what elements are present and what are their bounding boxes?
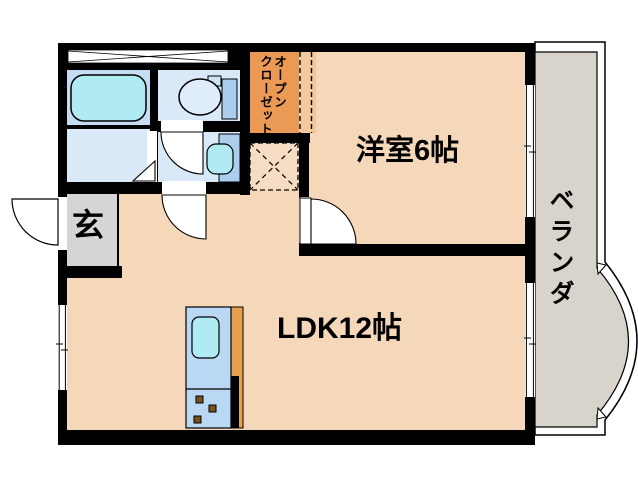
open-closet-label-col1: オープン <box>272 55 286 147</box>
open-closet-label: オープン クローゼット <box>258 55 286 147</box>
stove-burner <box>194 416 201 423</box>
wall-closet-left <box>240 50 250 195</box>
ldk-left-window <box>56 305 68 390</box>
refrigerator-space <box>250 143 298 190</box>
westernroom-window <box>524 85 536 217</box>
open-closet-label-col2: クローゼット <box>258 55 272 147</box>
washroom-door-opening <box>162 181 206 195</box>
toilet-bowl <box>179 79 221 115</box>
bathtub <box>71 75 146 121</box>
wall-ldk-westernroom <box>299 244 525 256</box>
wall-bath-divider <box>67 125 150 129</box>
washbasin-bowl <box>207 144 233 174</box>
stove-burner <box>196 396 203 403</box>
toilet-tank <box>222 79 237 119</box>
stove-burner <box>209 405 216 412</box>
veranda-label: ベランダ <box>547 187 572 327</box>
toilet-door-opening <box>161 120 203 133</box>
entrance-door-swing <box>12 199 58 245</box>
wall-washroom-bottom-left <box>67 182 162 194</box>
kitchen-sink <box>192 317 219 358</box>
floor-plan-page: 玄 洋室6帖 LDK12帖 ベランダ オープン クローゼット <box>0 0 638 480</box>
ldk-label: LDK12帖 <box>277 314 402 344</box>
western-room-label: 洋室6帖 <box>356 137 459 166</box>
entrance-edge-line <box>117 192 119 267</box>
entrance-step-wall <box>67 266 122 278</box>
open-closet-depth-strip <box>301 52 316 133</box>
wall-bottom <box>58 430 535 445</box>
bathroom-lower-floor <box>67 129 150 183</box>
wall-washroom-bottom-right <box>205 182 250 194</box>
entrance-label: 玄 <box>72 209 104 241</box>
kitchen-wall-stub <box>231 376 239 428</box>
westernroom-door-leaf <box>300 198 311 244</box>
louver-window <box>68 50 228 63</box>
entrance-door-opening <box>58 197 67 250</box>
ldk-window <box>524 283 536 397</box>
wall-top-right <box>245 43 535 52</box>
wall-westernroom-left <box>299 133 309 198</box>
